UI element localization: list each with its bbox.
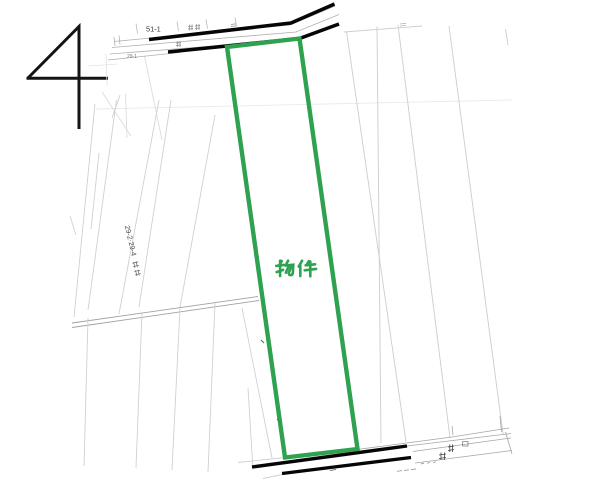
svg-text:29-1: 29-1 (127, 54, 137, 60)
svg-text:51-1: 51-1 (146, 25, 161, 34)
